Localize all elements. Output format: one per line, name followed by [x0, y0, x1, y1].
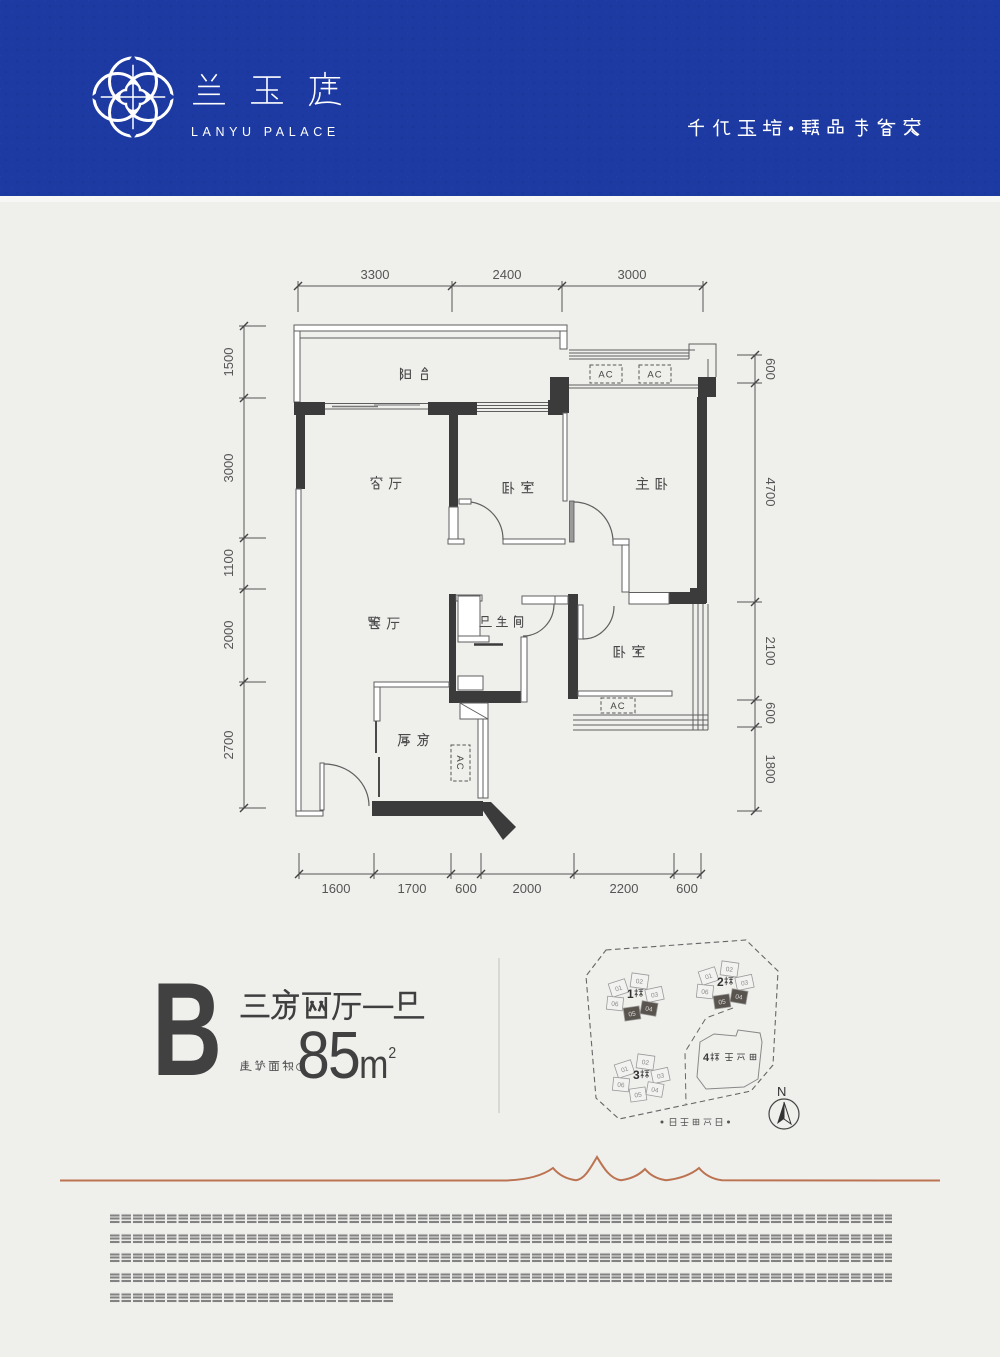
svg-text:06: 06	[617, 1082, 625, 1090]
svg-text:2100: 2100	[763, 637, 778, 666]
svg-text:2000: 2000	[221, 621, 236, 650]
svg-text:1800: 1800	[763, 755, 778, 784]
svg-text:2: 2	[717, 975, 724, 989]
svg-text:2000: 2000	[513, 881, 542, 896]
svg-text:3: 3	[633, 1068, 640, 1082]
svg-text:2200: 2200	[610, 881, 639, 896]
svg-text:06: 06	[701, 989, 709, 997]
svg-text:600: 600	[676, 881, 698, 896]
svg-text:AC: AC	[454, 755, 465, 770]
svg-text:AC: AC	[598, 369, 613, 380]
svg-text:4700: 4700	[763, 478, 778, 507]
svg-text:2700: 2700	[221, 731, 236, 760]
svg-text:1: 1	[627, 987, 634, 1001]
svg-text:2400: 2400	[493, 267, 522, 282]
svg-text:02: 02	[635, 978, 644, 986]
svg-text:3000: 3000	[618, 267, 647, 282]
svg-text:N: N	[777, 1084, 786, 1099]
svg-text:1500: 1500	[221, 348, 236, 377]
svg-text:02: 02	[641, 1059, 650, 1067]
svg-text:05: 05	[718, 998, 727, 1006]
svg-text:600: 600	[455, 881, 477, 896]
svg-text:06: 06	[611, 1001, 619, 1009]
svg-text:1700: 1700	[398, 881, 427, 896]
svg-text:1600: 1600	[322, 881, 351, 896]
svg-text:1100: 1100	[221, 549, 236, 577]
svg-text:AC: AC	[647, 369, 662, 380]
svg-text:600: 600	[763, 702, 778, 724]
svg-text:3000: 3000	[221, 454, 236, 483]
svg-text:AC: AC	[610, 701, 625, 712]
svg-text:05: 05	[634, 1091, 643, 1099]
svg-text:02: 02	[725, 966, 734, 974]
svg-text:3300: 3300	[361, 267, 390, 282]
svg-text:600: 600	[763, 358, 778, 380]
svg-text:4: 4	[703, 1052, 710, 1064]
svg-text:05: 05	[628, 1010, 637, 1018]
